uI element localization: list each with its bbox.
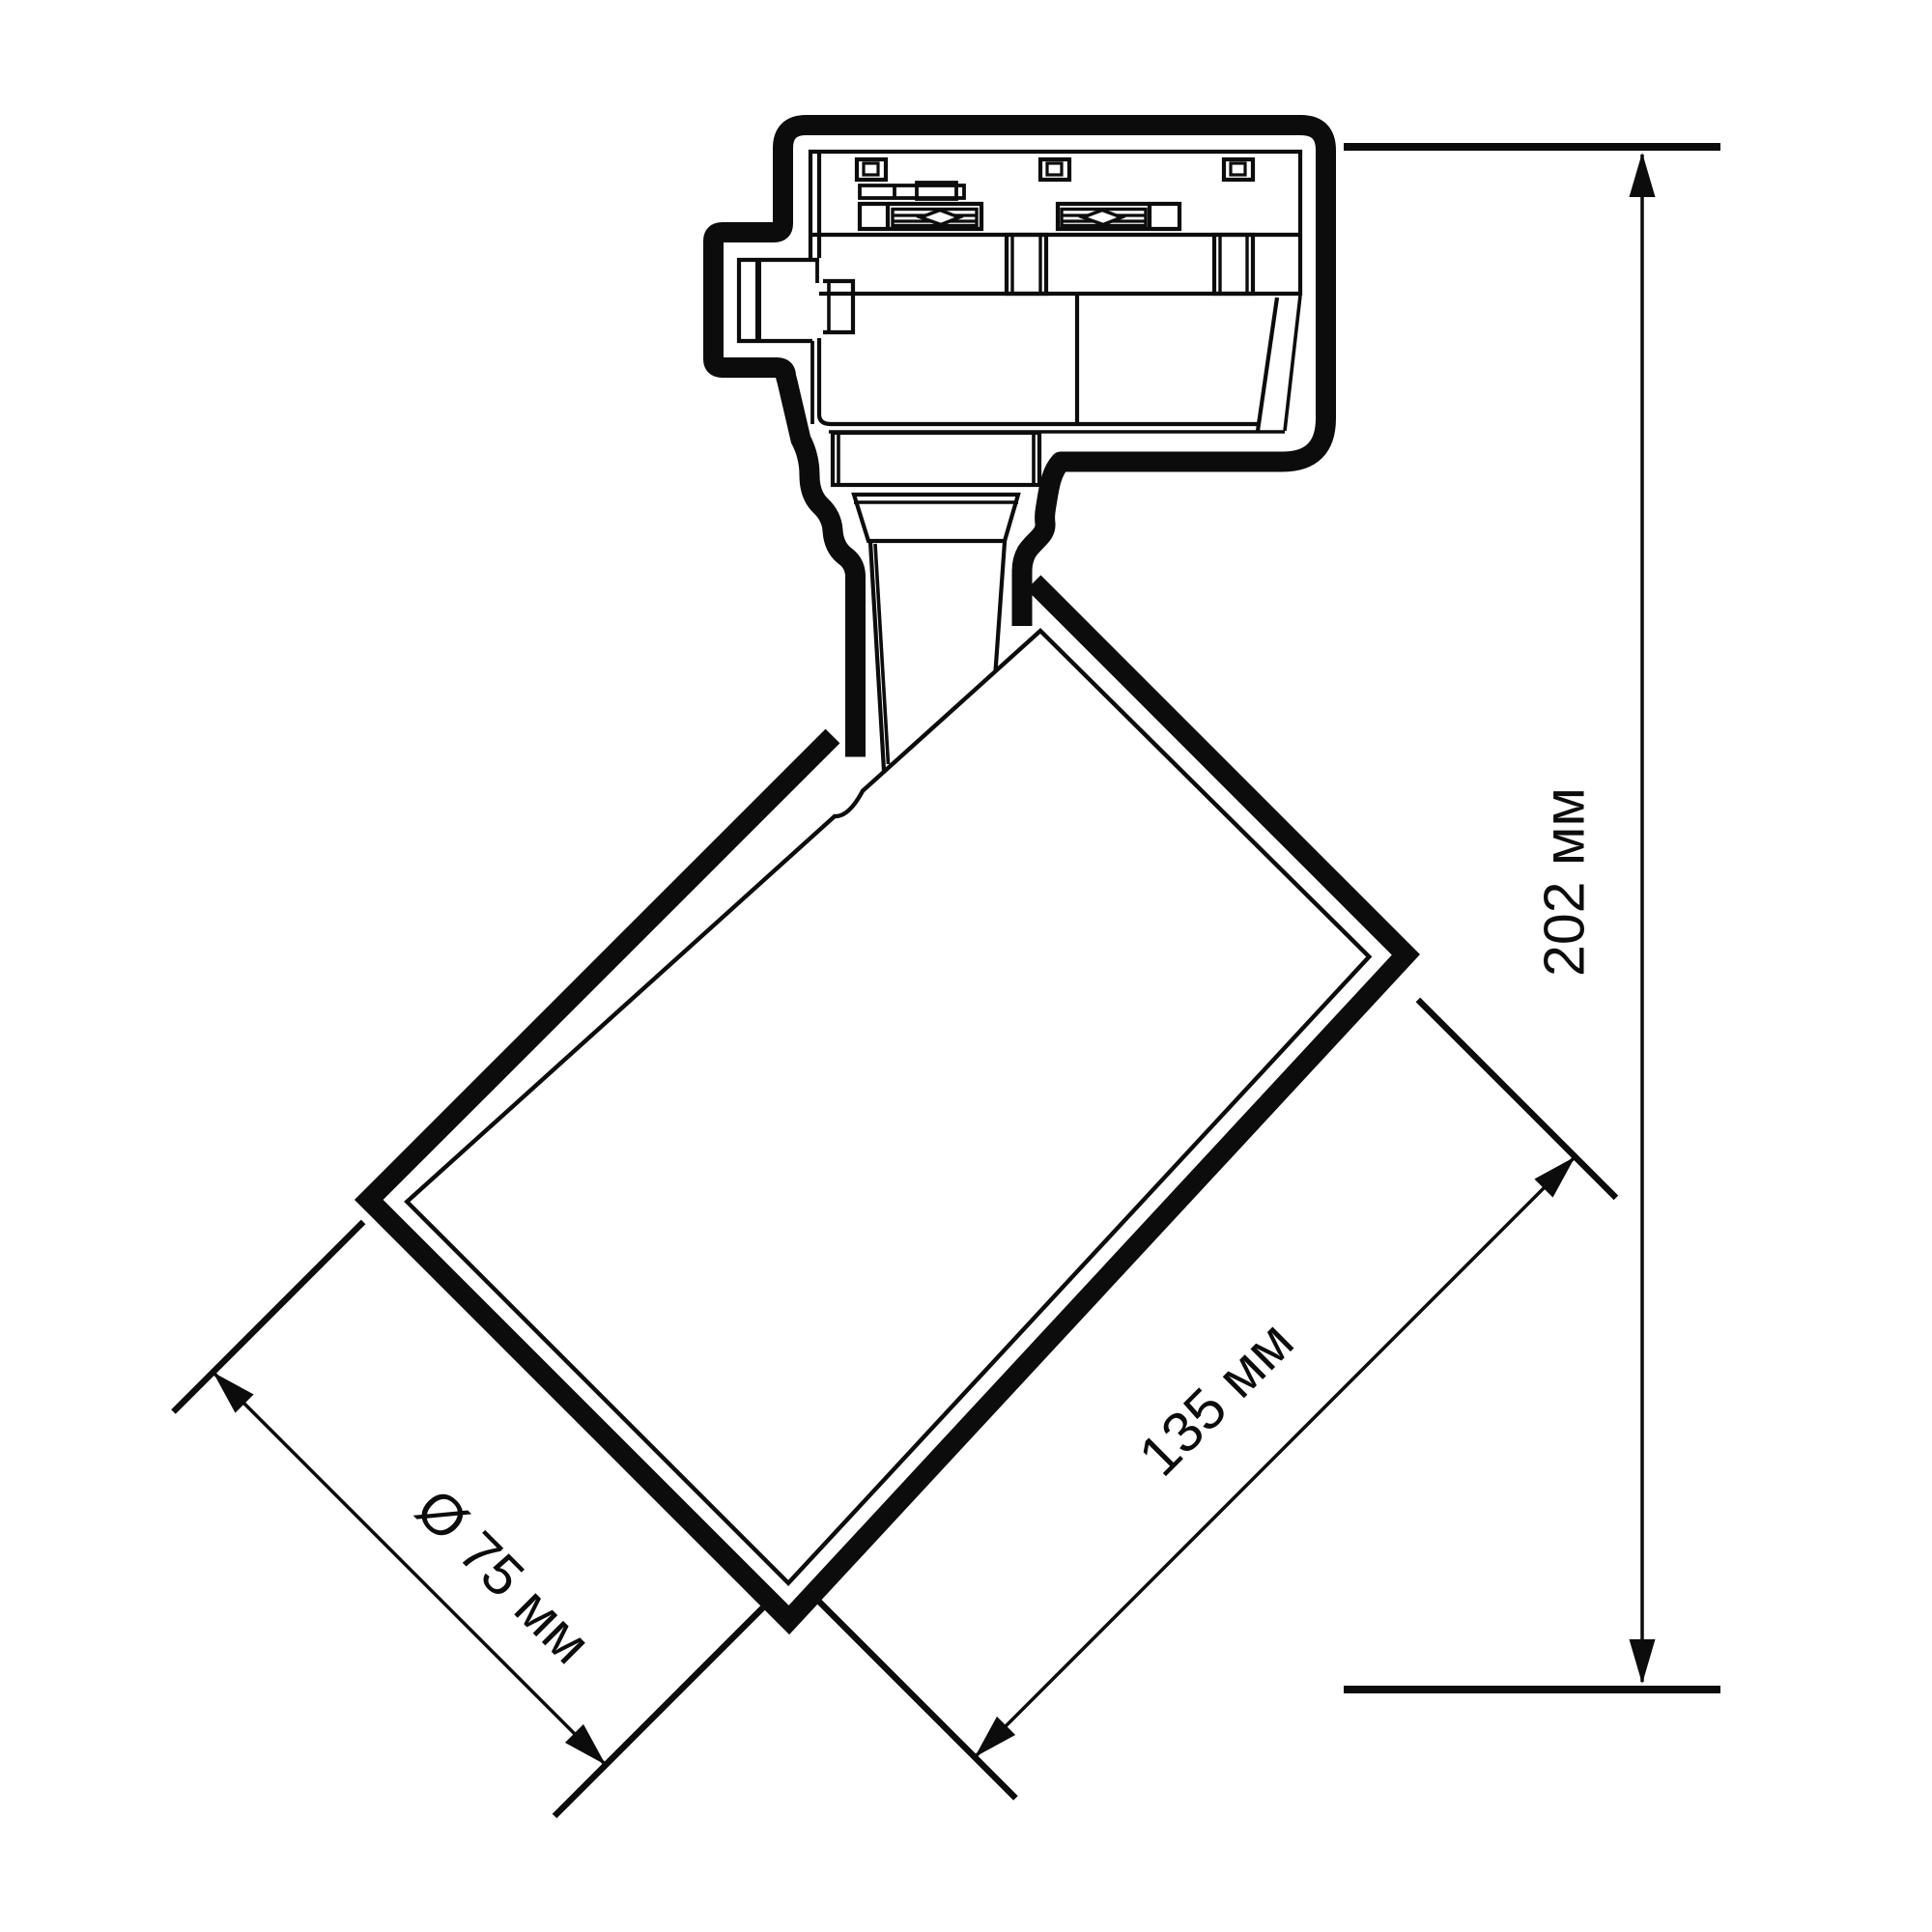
svg-text:202 мм: 202 мм [1533,787,1597,977]
